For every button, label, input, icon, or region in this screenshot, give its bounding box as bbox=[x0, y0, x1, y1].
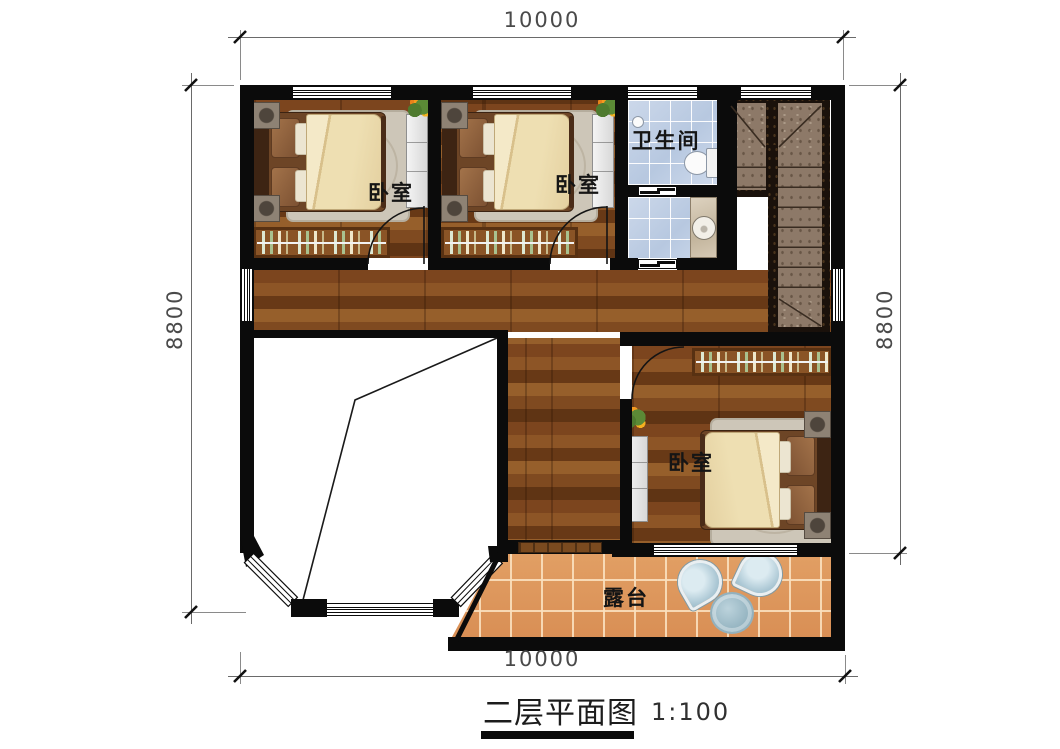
bay-corner-block bbox=[291, 599, 327, 617]
nightstand bbox=[804, 512, 831, 539]
wardrobe-icon bbox=[441, 227, 578, 258]
label-bedroom3: 卧室 bbox=[651, 447, 731, 477]
wall-bathroom-right bbox=[717, 97, 737, 270]
wall-void-top bbox=[252, 330, 508, 338]
dimension-bottom: 10000 bbox=[482, 647, 602, 671]
page-title: 二层平面图 bbox=[483, 688, 638, 732]
window-icon bbox=[832, 268, 844, 322]
title-underline bbox=[481, 731, 634, 739]
bay-corner-block bbox=[433, 599, 459, 617]
window-icon bbox=[740, 86, 812, 99]
wall-hall-top-b bbox=[428, 258, 550, 270]
corridor-floor bbox=[508, 338, 620, 540]
void-diagonal-marker bbox=[303, 338, 497, 600]
wall-bedroom3-left bbox=[620, 399, 632, 545]
wardrobe-icon bbox=[692, 348, 832, 376]
extension-line bbox=[845, 655, 846, 684]
extension-line bbox=[182, 85, 234, 86]
dimension-line-right bbox=[900, 73, 901, 565]
window-icon-bay-bottom bbox=[325, 603, 435, 616]
stair-divider bbox=[766, 145, 778, 197]
label-terrace: 露台 bbox=[586, 582, 666, 612]
label-bedroom2: 卧室 bbox=[538, 169, 618, 199]
wall-hall-top-d bbox=[677, 258, 737, 270]
nightstand bbox=[253, 195, 280, 222]
dimension-line-left bbox=[191, 73, 192, 624]
title-scale: 1:100 bbox=[651, 698, 730, 726]
extension-line bbox=[182, 612, 246, 613]
stair-winder-right bbox=[778, 103, 822, 148]
dimension-line-top bbox=[228, 37, 856, 38]
label-bedroom1: 卧室 bbox=[351, 177, 431, 207]
wall-right bbox=[831, 85, 845, 651]
hallway-floor bbox=[252, 270, 831, 332]
sliding-door-leaf bbox=[657, 188, 675, 191]
extension-line bbox=[849, 85, 907, 86]
wall-bedroom3-top bbox=[620, 332, 845, 346]
window-icon-bay-left bbox=[244, 553, 297, 606]
sliding-door-leaf bbox=[640, 264, 660, 267]
sliding-door-leaf bbox=[657, 261, 675, 264]
nightstand bbox=[253, 102, 280, 129]
extension-line bbox=[240, 30, 241, 80]
stair-landing-bottom bbox=[778, 298, 822, 327]
nightstand bbox=[441, 195, 468, 222]
sink-icon bbox=[692, 216, 716, 240]
wall-hall-top-c bbox=[610, 258, 638, 270]
window-icon bbox=[472, 86, 572, 99]
window-icon bbox=[627, 86, 698, 99]
window-icon bbox=[653, 544, 798, 556]
window-icon bbox=[292, 86, 392, 99]
sliding-door-leaf bbox=[640, 191, 660, 194]
table-icon bbox=[710, 592, 754, 634]
wall-void-right bbox=[497, 330, 508, 548]
dimension-line-bottom bbox=[228, 676, 858, 677]
stair-flight-right bbox=[778, 148, 822, 298]
extension-line bbox=[240, 652, 241, 684]
wall-hall-top-a bbox=[252, 258, 368, 270]
wardrobe-icon bbox=[253, 227, 390, 258]
dimension-left: 8800 bbox=[163, 290, 187, 350]
extension-line bbox=[849, 553, 907, 554]
nightstand bbox=[441, 102, 468, 129]
extension-line bbox=[843, 30, 844, 80]
floor-plan: 10000 10000 8800 8800 卧室 卧室 卫生间 卧室 露台 二层… bbox=[0, 0, 1060, 749]
nightstand bbox=[804, 411, 831, 438]
dimension-top: 10000 bbox=[482, 8, 602, 32]
label-bathroom: 卫生间 bbox=[606, 125, 726, 155]
corridor-window-cabinet-top bbox=[518, 542, 602, 553]
dimension-right: 8800 bbox=[873, 290, 897, 350]
window-icon bbox=[241, 268, 253, 322]
